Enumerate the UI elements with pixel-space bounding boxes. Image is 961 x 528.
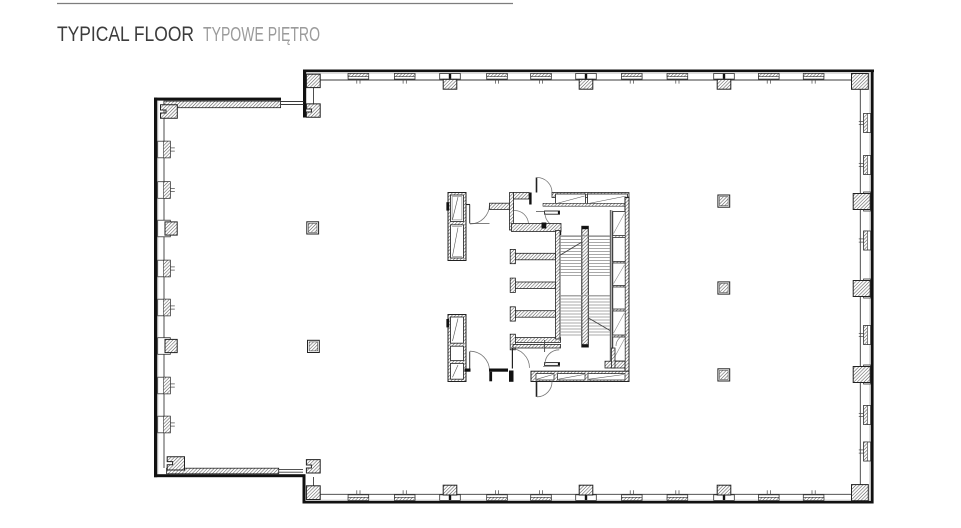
- svg-text:TYPOWE PIĘTRO: TYPOWE PIĘTRO: [203, 24, 320, 46]
- svg-text:TYPICAL FLOOR: TYPICAL FLOOR: [57, 23, 194, 46]
